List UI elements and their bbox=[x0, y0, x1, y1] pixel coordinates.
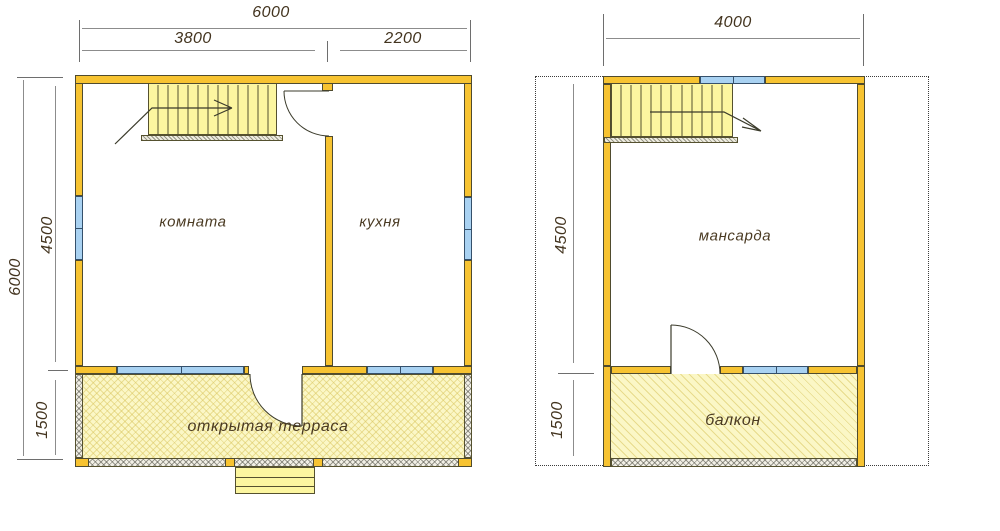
dim-3800: 3800 bbox=[174, 30, 212, 48]
dim-tick bbox=[79, 20, 80, 62]
floor1-right-wall-upper bbox=[464, 83, 472, 197]
dim-tick bbox=[48, 370, 68, 371]
dim-tick bbox=[603, 14, 604, 66]
terrace-step-post-right bbox=[313, 458, 323, 467]
balcony-wall-seg2 bbox=[720, 366, 743, 374]
terrace-step-post-left bbox=[225, 458, 235, 467]
dim-line-6000-top bbox=[82, 28, 467, 29]
terrace-wall-seg4 bbox=[433, 366, 472, 374]
dim-6000-side: 6000 bbox=[7, 258, 25, 296]
entrance-steps bbox=[235, 467, 315, 494]
dim-line-4000 bbox=[606, 38, 860, 39]
terrace-corner-post-left bbox=[75, 458, 89, 467]
dim-line-1500-f1 bbox=[55, 380, 56, 455]
dim-line-2200 bbox=[340, 50, 467, 51]
floor2-top-wall-seg2 bbox=[765, 76, 865, 84]
terrace-corner-post-right bbox=[458, 458, 472, 467]
stairs-floor2-landing-edge bbox=[604, 137, 738, 143]
terrace-wall-seg2 bbox=[244, 366, 249, 374]
balcony-wall-seg3 bbox=[808, 366, 857, 374]
dim-tick bbox=[558, 373, 594, 374]
partition-door-post bbox=[322, 83, 333, 91]
terrace-wall-seg1 bbox=[75, 366, 117, 374]
room-label-komnata: комната bbox=[159, 214, 226, 231]
floor2-left-wall bbox=[603, 84, 611, 366]
terrace-right-edge bbox=[464, 374, 472, 458]
room-label-balkon: балкон bbox=[705, 412, 761, 430]
dim-tick bbox=[327, 41, 328, 62]
floor1-right-wall-lower bbox=[464, 260, 472, 366]
floor1-left-wall-upper bbox=[75, 83, 83, 196]
balcony-window bbox=[743, 366, 808, 374]
dim-4500-f2: 4500 bbox=[553, 216, 571, 254]
floor1-left-window bbox=[75, 196, 83, 260]
balcony-bottom-edge bbox=[611, 458, 857, 467]
balcony-left-wall bbox=[603, 366, 611, 467]
stairs-floor1-landing-edge bbox=[141, 135, 283, 141]
terrace-left-edge bbox=[75, 374, 83, 458]
dim-line-1500-f2 bbox=[573, 380, 574, 456]
floor1-right-window bbox=[464, 197, 472, 260]
floor1-left-wall-lower bbox=[75, 260, 83, 366]
partition-door bbox=[284, 91, 329, 136]
stairs-floor1 bbox=[148, 84, 277, 135]
step-line bbox=[236, 486, 314, 487]
floor2-top-wall-seg1 bbox=[603, 76, 700, 84]
floor1-top-wall bbox=[75, 75, 472, 84]
terrace-window-left bbox=[117, 366, 244, 374]
floor2-right-wall bbox=[857, 84, 865, 366]
step-line bbox=[236, 477, 314, 478]
dim-4500-f1: 4500 bbox=[39, 216, 57, 254]
room-label-terrasa: открытая терраса bbox=[188, 418, 349, 436]
dim-tick bbox=[863, 14, 864, 66]
dim-tick bbox=[17, 77, 63, 78]
terrace-area bbox=[83, 374, 464, 458]
dim-2200: 2200 bbox=[384, 30, 422, 48]
dim-1500-f2: 1500 bbox=[549, 401, 567, 439]
terrace-wall-seg3 bbox=[302, 366, 367, 374]
floor2-top-window bbox=[700, 76, 765, 84]
dim-line-4500-f2 bbox=[573, 84, 574, 363]
balcony-wall-seg1 bbox=[611, 366, 671, 374]
partition-wall bbox=[325, 136, 333, 366]
floorplan-canvas: комната кухня открытая терраса 6000 3800… bbox=[0, 0, 1000, 531]
terrace-window-right bbox=[367, 366, 433, 374]
dim-6000-top: 6000 bbox=[252, 4, 290, 22]
dim-tick bbox=[17, 459, 63, 460]
dim-1500-f1: 1500 bbox=[34, 401, 52, 439]
stairs-floor2 bbox=[611, 84, 733, 137]
room-label-mansarda: мансарда bbox=[699, 228, 772, 245]
dim-tick bbox=[470, 20, 471, 62]
balcony-right-wall bbox=[857, 366, 865, 467]
terrace-bottom-edge bbox=[75, 458, 472, 467]
dim-4000: 4000 bbox=[714, 14, 752, 32]
room-label-kuhnya: кухня bbox=[359, 214, 400, 231]
dim-line-3800 bbox=[82, 50, 315, 51]
